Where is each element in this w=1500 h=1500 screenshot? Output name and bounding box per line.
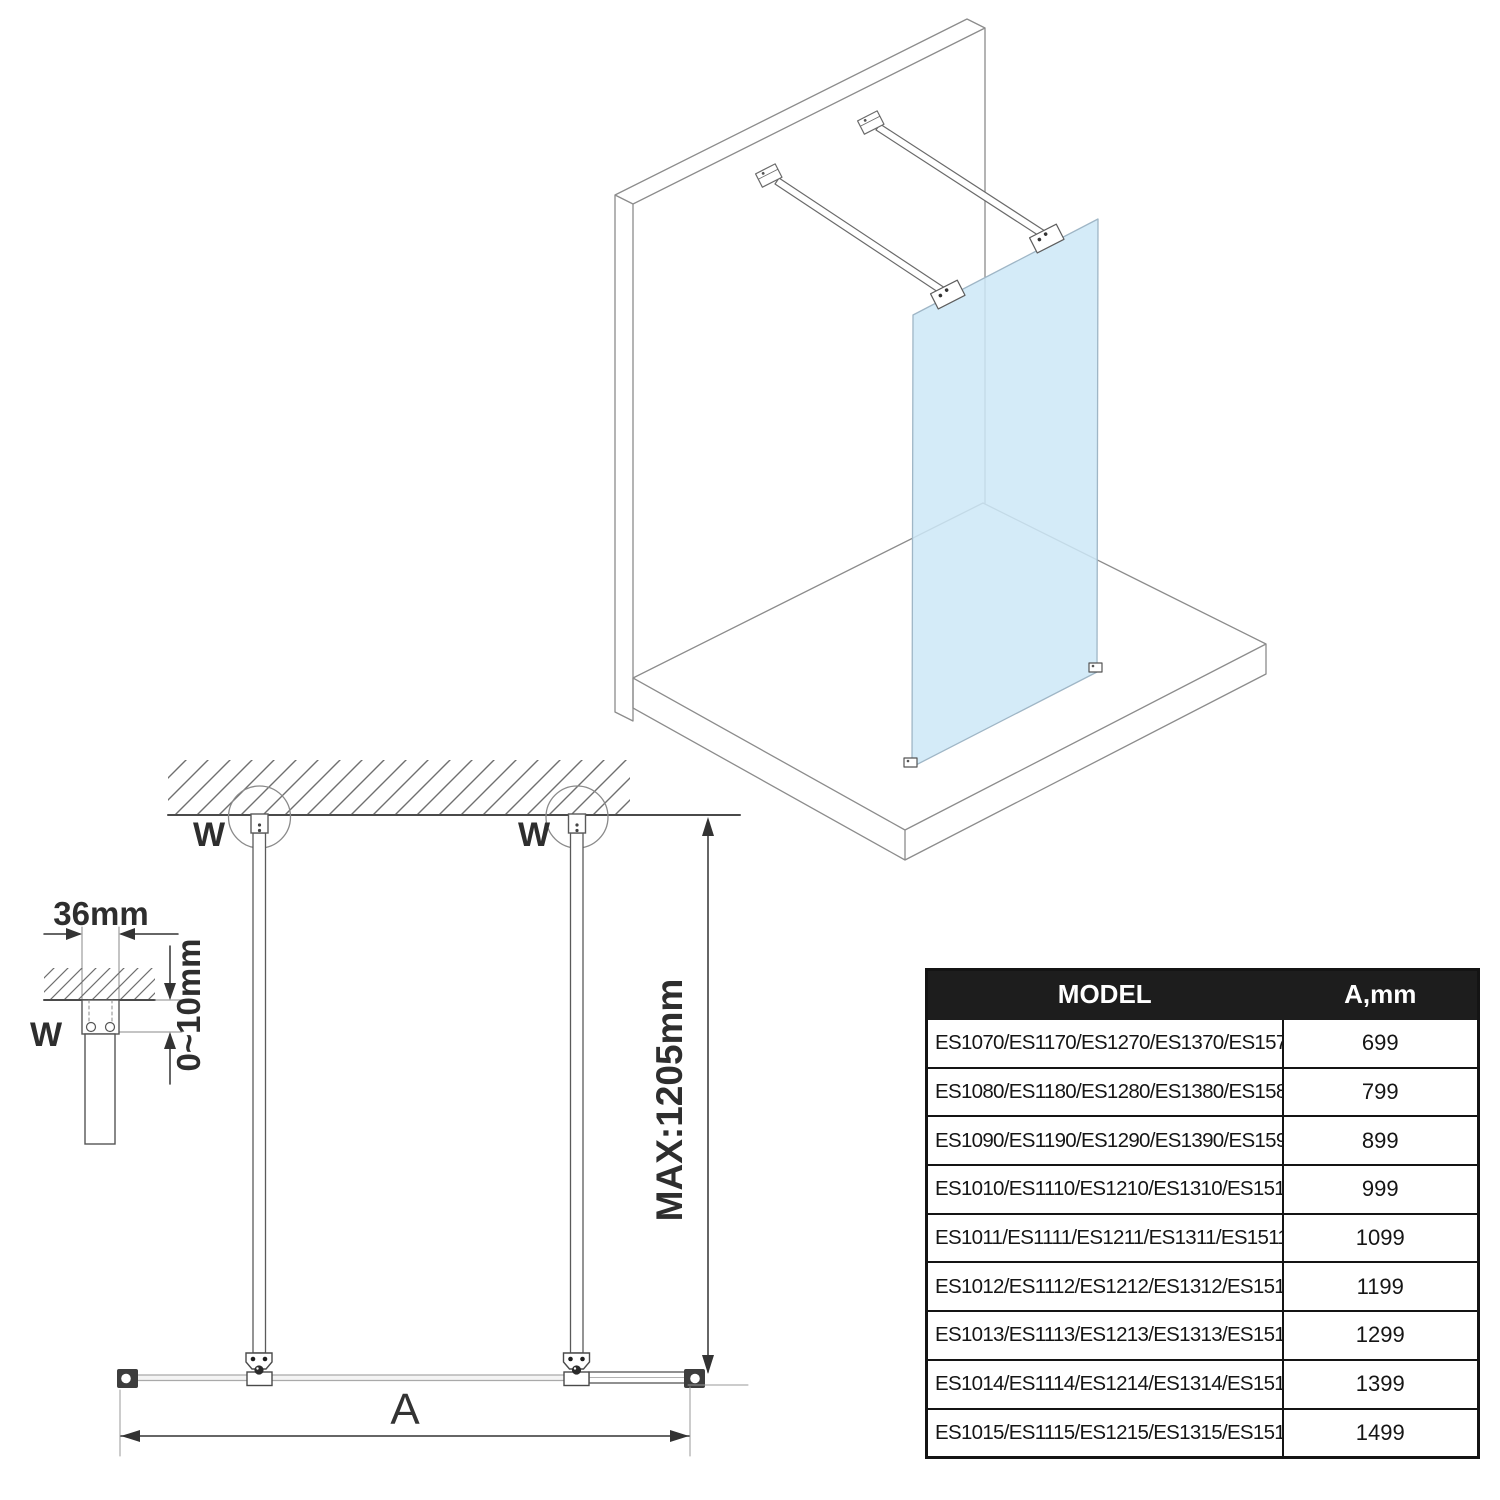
dimension-a: A — [120, 1385, 690, 1456]
table-row: ES1014/ES1114/ES1214/ES1314/ES15141399 — [927, 1360, 1479, 1409]
wall-hatch-detail — [44, 968, 155, 1000]
wall-anchor-label-left: W — [193, 816, 226, 854]
wall-bracket-right — [569, 814, 586, 833]
table-row: ES1080/ES1180/ES1280/ES1380/ES1580799 — [927, 1068, 1479, 1117]
model-cell: ES1012/ES1112/ES1212/ES1312/ES1512 — [927, 1262, 1283, 1311]
model-cell: ES1015/ES1115/ES1215/ES1315/ES1515 — [927, 1409, 1283, 1458]
a-mm-cell: 799 — [1283, 1068, 1479, 1117]
support-bar-left — [253, 833, 266, 1353]
a-mm-cell: 699 — [1283, 1019, 1479, 1068]
bracket-width-label: 36mm — [53, 895, 148, 932]
stabilizer-bar-right — [589, 1372, 685, 1383]
model-cell: ES1090/ES1190/ES1290/ES1390/ES1590 — [927, 1116, 1283, 1165]
bar-head-left — [246, 1353, 272, 1386]
a-mm-column-header: A,mm — [1283, 970, 1479, 1020]
model-cell: ES1013/ES1113/ES1213/ES1313/ES1513 — [927, 1311, 1283, 1360]
table-row: ES1015/ES1115/ES1215/ES1315/ES15151499 — [927, 1409, 1479, 1458]
model-cell: ES1070/ES1170/ES1270/ES1370/ES1570 — [927, 1019, 1283, 1068]
spec-table-body: ES1070/ES1170/ES1270/ES1370/ES1570699ES1… — [927, 1019, 1479, 1457]
a-mm-cell: 1399 — [1283, 1360, 1479, 1409]
wall-anchor-label-right: W — [518, 816, 551, 854]
bar-head-right — [564, 1353, 590, 1386]
table-row: ES1090/ES1190/ES1290/ES1390/ES1590899 — [927, 1116, 1479, 1165]
max-bar-length-label: MAX:1205mm — [649, 979, 690, 1222]
a-mm-cell: 1299 — [1283, 1311, 1479, 1360]
table-row: ES1010/ES1110/ES1210/ES1310/ES1510999 — [927, 1165, 1479, 1214]
bracket-detail-view: 36mm W 0~10mm — [30, 895, 207, 1144]
dimension-max-length: MAX:1205mm — [649, 817, 748, 1385]
spec-table: MODEL A,mm ES1070/ES1170/ES1270/ES1370/E… — [925, 968, 1480, 1459]
a-mm-cell: 1199 — [1283, 1262, 1479, 1311]
glass-width-label: A — [390, 1385, 420, 1434]
table-row: ES1011/ES1111/ES1211/ES1311/ES15111099 — [927, 1214, 1479, 1263]
support-bar-front — [775, 178, 948, 296]
dimension-0-10mm: 0~10mm — [164, 938, 207, 1084]
glass-foot-left — [904, 758, 917, 767]
model-cell: ES1010/ES1110/ES1210/ES1310/ES1510 — [927, 1165, 1283, 1214]
wall-hatch — [168, 760, 630, 815]
model-column-header: MODEL — [927, 970, 1283, 1020]
a-mm-cell: 1099 — [1283, 1214, 1479, 1263]
wall-anchor-label-detail: W — [30, 1016, 63, 1054]
wall-bracket-detail — [82, 1000, 119, 1034]
end-cap-left — [117, 1369, 138, 1388]
support-bar-detail — [85, 1034, 115, 1144]
a-mm-cell: 1499 — [1283, 1409, 1479, 1458]
model-cell: ES1011/ES1111/ES1211/ES1311/ES1511 — [927, 1214, 1283, 1263]
a-mm-cell: 999 — [1283, 1165, 1479, 1214]
glass-foot-right — [1089, 663, 1102, 672]
wall-bracket-left — [251, 814, 268, 833]
adjustment-range-label: 0~10mm — [170, 938, 207, 1071]
plan-view: W W — [117, 760, 748, 1456]
isometric-view — [615, 19, 1266, 860]
table-row: ES1013/ES1113/ES1213/ES1313/ES15131299 — [927, 1311, 1479, 1360]
table-row: ES1070/ES1170/ES1270/ES1370/ES1570699 — [927, 1019, 1479, 1068]
model-cell: ES1080/ES1180/ES1280/ES1380/ES1580 — [927, 1068, 1283, 1117]
table-row: ES1012/ES1112/ES1212/ES1312/ES15121199 — [927, 1262, 1479, 1311]
model-cell: ES1014/ES1114/ES1214/ES1314/ES1514 — [927, 1360, 1283, 1409]
a-mm-cell: 899 — [1283, 1116, 1479, 1165]
spec-table-header-row: MODEL A,mm — [927, 970, 1479, 1020]
support-bar-back — [876, 124, 1048, 239]
support-bar-right — [571, 833, 584, 1353]
